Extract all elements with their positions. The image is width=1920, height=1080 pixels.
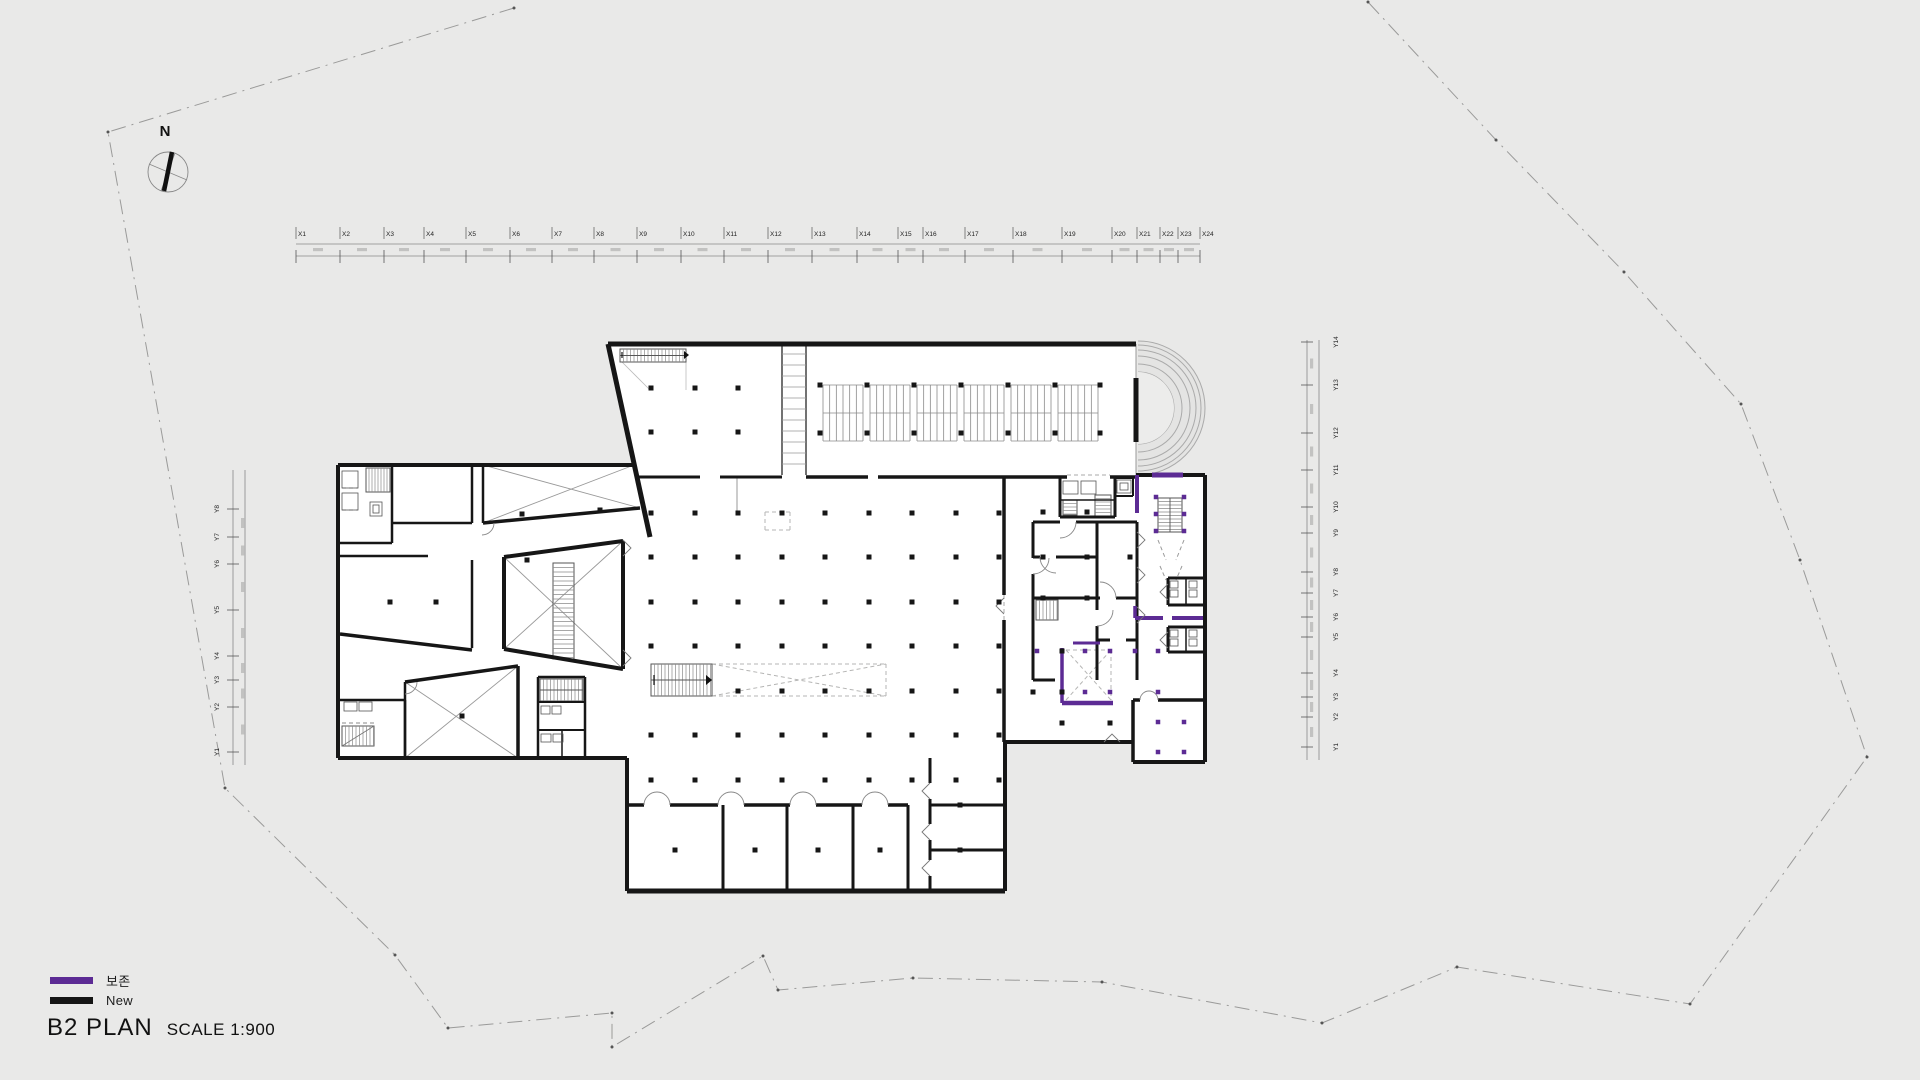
svg-text:X12: X12 <box>770 231 782 238</box>
north-compass: N <box>148 123 188 192</box>
svg-text:X11: X11 <box>726 231 737 238</box>
svg-text:Y10: Y10 <box>1333 501 1340 513</box>
svg-text:X4: X4 <box>426 231 434 238</box>
svg-text:Y14: Y14 <box>1333 336 1340 348</box>
svg-text:X21: X21 <box>1139 231 1151 238</box>
plan-scale: SCALE 1:900 <box>167 1020 276 1040</box>
svg-text:Y1: Y1 <box>214 748 221 756</box>
svg-text:X9: X9 <box>639 231 647 238</box>
svg-text:X16: X16 <box>925 231 937 238</box>
new-color-swatch <box>50 997 93 1004</box>
north-label: N <box>160 123 171 140</box>
svg-text:Y4: Y4 <box>214 652 221 660</box>
svg-text:X23: X23 <box>1180 231 1192 238</box>
svg-text:Y8: Y8 <box>1333 568 1340 576</box>
svg-text:Y11: Y11 <box>1333 464 1340 475</box>
building-floor <box>338 344 1205 891</box>
svg-text:X13: X13 <box>814 231 826 238</box>
svg-text:Y13: Y13 <box>1333 379 1340 391</box>
legend-item-new: New <box>50 990 133 1010</box>
svg-text:X19: X19 <box>1064 231 1076 238</box>
svg-text:X8: X8 <box>596 231 604 238</box>
svg-text:X3: X3 <box>386 231 394 238</box>
svg-text:Y3: Y3 <box>1333 693 1340 701</box>
svg-text:X24: X24 <box>1202 231 1214 238</box>
svg-text:Y7: Y7 <box>214 533 221 541</box>
svg-text:X22: X22 <box>1162 231 1174 238</box>
svg-text:X14: X14 <box>859 231 871 238</box>
svg-text:Y2: Y2 <box>214 703 221 711</box>
site-plan-sheet: X1X2X3X4X5X6X7X8X9X10X11X12X13X14X15X16X… <box>0 0 1920 1080</box>
floor-plan-drawing: X1X2X3X4X5X6X7X8X9X10X11X12X13X14X15X16X… <box>0 0 1920 1080</box>
svg-text:Y2: Y2 <box>1333 713 1340 721</box>
plan-title: B2 PLAN <box>47 1014 153 1042</box>
svg-text:X10: X10 <box>683 231 695 238</box>
svg-text:X15: X15 <box>900 231 912 238</box>
title-block: B2 PLAN SCALE 1:900 <box>47 1014 275 1042</box>
svg-text:Y8: Y8 <box>214 505 221 513</box>
svg-text:Y7: Y7 <box>1333 589 1340 597</box>
svg-text:X18: X18 <box>1015 231 1027 238</box>
curved-ramp <box>1138 341 1205 475</box>
svg-text:X20: X20 <box>1114 231 1126 238</box>
legend-item-preserved: 보존 <box>50 970 133 990</box>
svg-text:X1: X1 <box>298 231 306 238</box>
new-label: New <box>106 993 133 1008</box>
legend: 보존 New <box>50 970 133 1010</box>
preserved-color-swatch <box>50 977 93 984</box>
svg-text:X6: X6 <box>512 231 520 238</box>
svg-text:Y9: Y9 <box>1333 529 1340 537</box>
svg-text:Y5: Y5 <box>214 606 221 614</box>
svg-text:X2: X2 <box>342 231 350 238</box>
svg-text:X17: X17 <box>967 231 979 238</box>
svg-text:Y3: Y3 <box>214 676 221 684</box>
svg-text:Y1: Y1 <box>1333 743 1340 751</box>
svg-text:X7: X7 <box>554 231 562 238</box>
svg-text:Y6: Y6 <box>214 560 221 568</box>
svg-text:Y12: Y12 <box>1333 427 1340 439</box>
svg-text:X5: X5 <box>468 231 476 238</box>
svg-text:Y6: Y6 <box>1333 613 1340 621</box>
svg-text:Y4: Y4 <box>1333 669 1340 677</box>
preserved-label: 보존 <box>106 971 131 990</box>
svg-text:Y5: Y5 <box>1333 633 1340 641</box>
